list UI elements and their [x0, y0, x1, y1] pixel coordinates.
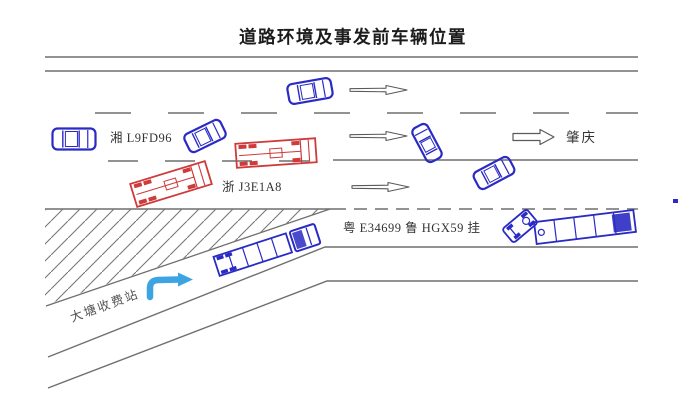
vehicle-truck-zhe-right — [235, 138, 316, 168]
vehicle-car-middle-skewed — [183, 118, 228, 154]
vehicle-car-xiang-plate — [53, 129, 96, 150]
lane-direction-arrow — [350, 132, 407, 141]
plate-label-zhe: 浙 J3E1A8 — [222, 179, 282, 194]
vehicle-car-top-lane — [287, 77, 334, 104]
lane-direction-arrow — [352, 183, 409, 192]
road-accident-diagram: 道路环境及事发前车辆位置 — [0, 0, 680, 402]
diagram-title: 道路环境及事发前车辆位置 — [239, 27, 467, 47]
destination-label: 肇庆 — [566, 130, 597, 145]
gore-hatched-area — [45, 209, 330, 305]
direction-arrows — [350, 86, 554, 192]
vehicle-car-turned-up — [411, 122, 444, 164]
vehicle-trailer-lu-plate — [534, 210, 636, 244]
diagram-canvas: 道路环境及事发前车辆位置 — [0, 0, 680, 402]
exit-block-arrow — [513, 130, 554, 145]
stray-blue-mark — [673, 199, 678, 203]
plate-label-yue-lu: 粤 E34699 鲁 HGX59 挂 — [343, 220, 480, 235]
vehicle-truck-zhe-left — [130, 161, 212, 207]
plate-label-xiang: 湘 L9FD96 — [110, 130, 172, 145]
merge-direction-arrow — [150, 273, 193, 298]
lane-direction-arrow — [350, 86, 407, 95]
vehicle-tractor-yue-plate — [502, 209, 538, 243]
